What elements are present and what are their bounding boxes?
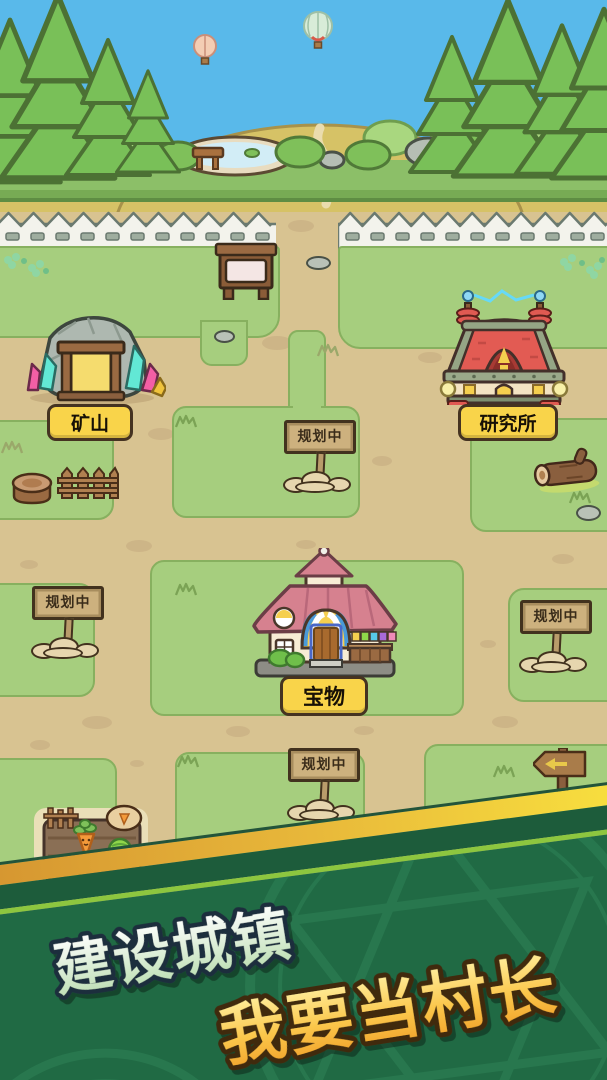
path-spot [126,540,152,552]
background-scenery [0,0,607,212]
grass-tuft [0,440,24,455]
bush-icon [286,653,304,667]
sign-rocks [519,649,593,675]
planning-sign-right[interactable]: 规划中 [514,600,598,675]
path-spot [148,428,174,440]
notice-board[interactable] [214,242,278,300]
mine-label-text: 矿山 [71,413,109,435]
sign-board: 规划中 [284,420,356,454]
bunting-icon [352,632,396,641]
planning-sign-top[interactable]: 规划中 [278,420,362,495]
planning-sign-bottom[interactable]: 规划中 [282,748,366,823]
sign-rocks [31,635,105,661]
mine-label[interactable]: 矿山 [47,404,133,441]
grass-tuft [174,582,198,597]
clover-patch [2,252,52,278]
path-spot [492,716,518,728]
grass-tuft [492,764,516,779]
rock-icon [214,330,235,343]
sign-rocks [283,469,357,495]
sign-text: 规划中 [46,596,91,610]
mine-building[interactable] [18,308,166,406]
grass-tuft [174,414,198,429]
sign-board: 规划中 [520,600,592,634]
rock-icon [576,505,601,521]
planning-sign-left[interactable]: 规划中 [26,586,110,661]
path-spot [82,716,112,729]
log-icon [528,444,607,500]
path-spot [372,456,392,466]
sign-text: 规划中 [298,430,343,444]
path-spot [480,640,496,648]
sign-board: 规划中 [288,748,360,782]
path-spot [30,740,50,750]
treasure-house-building[interactable] [250,548,400,682]
game-screen: 矿山 研究所 规划中 [0,0,607,1080]
research-lab-label[interactable]: 研究所 [458,404,558,441]
path-spot [288,220,314,232]
path-spot [552,554,574,564]
lightning-icon [474,291,534,301]
lamp-icon [441,382,455,396]
treasure-house-label-text: 宝物 [303,685,345,709]
wooden-fence [56,464,120,502]
research-lab-building[interactable] [438,283,570,405]
path-spot [20,560,38,569]
clover-patch [556,252,606,280]
path-spot [226,726,250,737]
tree-stump [10,470,56,506]
grass-tuft [316,343,340,358]
path-spot [354,726,374,735]
sign-text: 规划中 [302,758,347,772]
lamp-icon [553,382,567,396]
sign-text: 规划中 [534,610,579,624]
rock-icon [306,256,331,270]
treasure-house-label[interactable]: 宝物 [280,676,368,716]
grass-tuft [176,754,200,769]
garden-fence [44,808,78,828]
research-lab-label-text: 研究所 [479,413,536,435]
path-spot [130,760,144,767]
sign-board: 规划中 [32,586,104,620]
